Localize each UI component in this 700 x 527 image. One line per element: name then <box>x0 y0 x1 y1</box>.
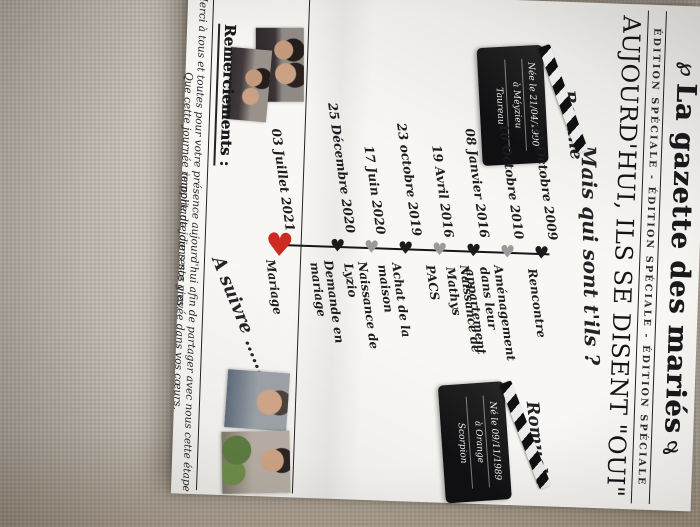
heart-icon: ♥ <box>330 238 346 256</box>
clapperboard-body: Né le 09/11/1989 à Orange Scorpion <box>438 381 512 503</box>
timeline-date: 19 Avril 2016 <box>429 144 457 239</box>
photo-scene: ℘La gazette des mariés℘ ÉDITION SPÉCIALE… <box>0 0 700 527</box>
clapperboard-romuald: Né le 09/11/1989 à Orange Scorpion <box>438 381 521 504</box>
heart-icon: ♥ <box>534 245 550 263</box>
heart-icon: ♥ <box>265 228 295 261</box>
heart-icon: ♥ <box>432 242 448 260</box>
timeline-event: Rencontre <box>524 268 555 395</box>
heart-icon: ♥ <box>398 241 414 259</box>
flourish-right-icon: ℘ <box>662 433 687 461</box>
timeline-date: 25 Décembre 2020 <box>325 102 358 235</box>
timeline-entry: 17 Juin 2020 ♥ Naissance de Lyzio <box>363 0 381 500</box>
timeline-date: 03 Juillet 2021 <box>269 128 298 233</box>
timeline-entry: 23 octobre 2019 ♥ Achat de la maison <box>397 0 415 501</box>
heart-icon: ♥ <box>500 244 516 262</box>
thanks-heading: Remerciements : <box>213 24 239 167</box>
heart-icon: ♥ <box>466 243 482 261</box>
photo-couple-4 <box>221 431 290 494</box>
photo-couple-3 <box>224 369 290 431</box>
timeline-date: 17 Juin 2020 <box>361 145 388 236</box>
timeline-entry: 25 Décembre 2020 ♥ Demande en mariage <box>329 0 347 499</box>
subtitle-question: Mais qui sont t'ils ? <box>574 3 607 508</box>
heart-icon: ♥ <box>364 239 380 257</box>
timeline-date: 23 octobre 2019 <box>394 122 425 237</box>
gazette-page: ℘La gazette des mariés℘ ÉDITION SPÉCIALE… <box>171 0 700 511</box>
gazette-title: La gazette des mariés <box>658 83 700 435</box>
flourish-left-icon: ℘ <box>675 55 700 83</box>
